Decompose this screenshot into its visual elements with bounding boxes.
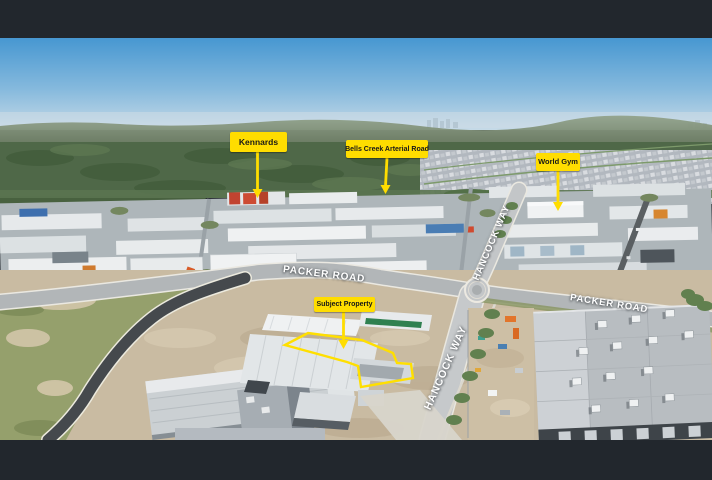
world-gym-label: World Gym [536, 153, 580, 171]
sky [0, 38, 712, 150]
letterbox-top [0, 0, 712, 38]
white-van [488, 390, 497, 396]
construction-area [468, 308, 534, 440]
left-warehouse-front [175, 428, 325, 440]
screenshot-frame: Kennards Bells Creek Arterial Road World… [0, 0, 712, 480]
kennards-label: Kennards [230, 132, 287, 152]
subject-property-label: Subject Property [314, 297, 375, 312]
orange-machinery [505, 316, 516, 322]
bells-creek-arterial-road-label: Bells Creek Arterial Road [346, 140, 428, 158]
right-warehouse [533, 304, 712, 440]
aerial-photo: Kennards Bells Creek Arterial Road World… [0, 38, 712, 440]
aerial-scene [0, 38, 712, 440]
letterbox-bottom [0, 440, 712, 480]
